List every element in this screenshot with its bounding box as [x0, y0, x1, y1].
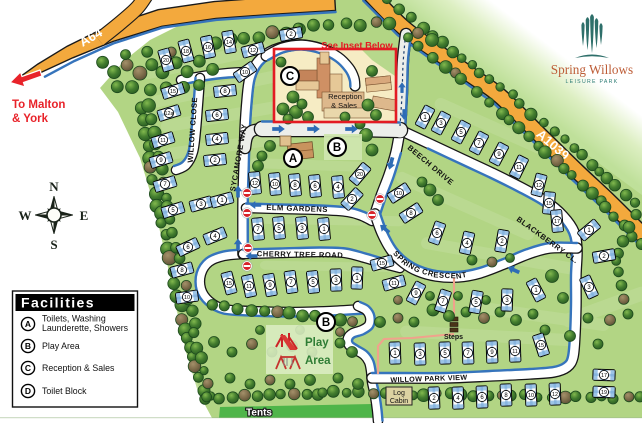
svg-text:Spring Willows: Spring Willows [551, 62, 633, 77]
svg-text:A: A [289, 153, 297, 165]
svg-text:12: 12 [250, 48, 256, 54]
svg-text:18: 18 [183, 49, 189, 55]
svg-text:W: W [19, 208, 32, 223]
svg-text:Tents: Tents [246, 408, 272, 419]
svg-text:To Malton: To Malton [12, 99, 65, 111]
svg-text:16: 16 [205, 45, 211, 51]
svg-text:11: 11 [160, 138, 166, 144]
svg-text:Reception & Sales: Reception & Sales [42, 363, 115, 373]
svg-text:A: A [25, 319, 31, 329]
svg-text:12a: 12a [165, 111, 174, 117]
svg-text:10: 10 [272, 182, 278, 188]
svg-text:15: 15 [538, 343, 544, 349]
svg-text:15: 15 [226, 281, 232, 287]
svg-text:B: B [322, 317, 330, 329]
svg-text:Toilets, Washing: Toilets, Washing [42, 314, 106, 324]
svg-text:Play Area: Play Area [42, 341, 80, 351]
svg-text:14: 14 [226, 40, 232, 46]
svg-text:Area: Area [305, 355, 331, 367]
svg-text:10: 10 [396, 191, 402, 197]
svg-text:20: 20 [163, 58, 169, 64]
svg-text:15: 15 [170, 89, 176, 95]
svg-text:Launderette, Showers: Launderette, Showers [42, 323, 129, 333]
svg-text:12: 12 [536, 183, 542, 189]
svg-text:Play: Play [305, 337, 329, 349]
svg-text:B: B [25, 341, 31, 351]
svg-text:20: 20 [357, 172, 363, 178]
svg-text:19: 19 [601, 390, 607, 396]
svg-text:17: 17 [554, 219, 560, 225]
svg-text:Reception: Reception [328, 92, 362, 101]
svg-text:S: S [50, 237, 57, 252]
svg-text:LEISURE PARK: LEISURE PARK [566, 79, 619, 85]
svg-text:E: E [80, 208, 89, 223]
svg-text:15: 15 [546, 201, 552, 207]
svg-text:12: 12 [552, 392, 558, 398]
svg-text:C: C [286, 71, 294, 83]
svg-text:See Inset Below: See Inset Below [321, 40, 393, 51]
svg-text:11: 11 [391, 281, 397, 287]
svg-text:11: 11 [512, 349, 518, 355]
svg-text:CHERRY TREE ROAD: CHERRY TREE ROAD [257, 249, 344, 260]
svg-text:N: N [49, 179, 59, 194]
svg-text:& York: & York [12, 113, 49, 125]
svg-text:B: B [333, 142, 341, 154]
svg-text:10: 10 [184, 295, 190, 301]
svg-text:& Sales: & Sales [331, 101, 357, 110]
svg-text:Toilet Block: Toilet Block [42, 386, 87, 396]
svg-text:12: 12 [252, 181, 258, 187]
svg-text:Steps: Steps [444, 334, 463, 341]
svg-text:15: 15 [379, 261, 385, 267]
svg-text:Log: Log [393, 390, 405, 397]
svg-text:Facilities: Facilities [21, 295, 95, 311]
svg-text:Cabin: Cabin [390, 398, 408, 405]
svg-text:10: 10 [528, 393, 534, 399]
svg-text:11: 11 [246, 284, 252, 290]
svg-text:10: 10 [242, 70, 248, 76]
svg-text:D: D [25, 386, 31, 396]
svg-text:C: C [25, 363, 31, 373]
svg-text:11: 11 [516, 165, 522, 171]
svg-text:17: 17 [601, 373, 607, 379]
